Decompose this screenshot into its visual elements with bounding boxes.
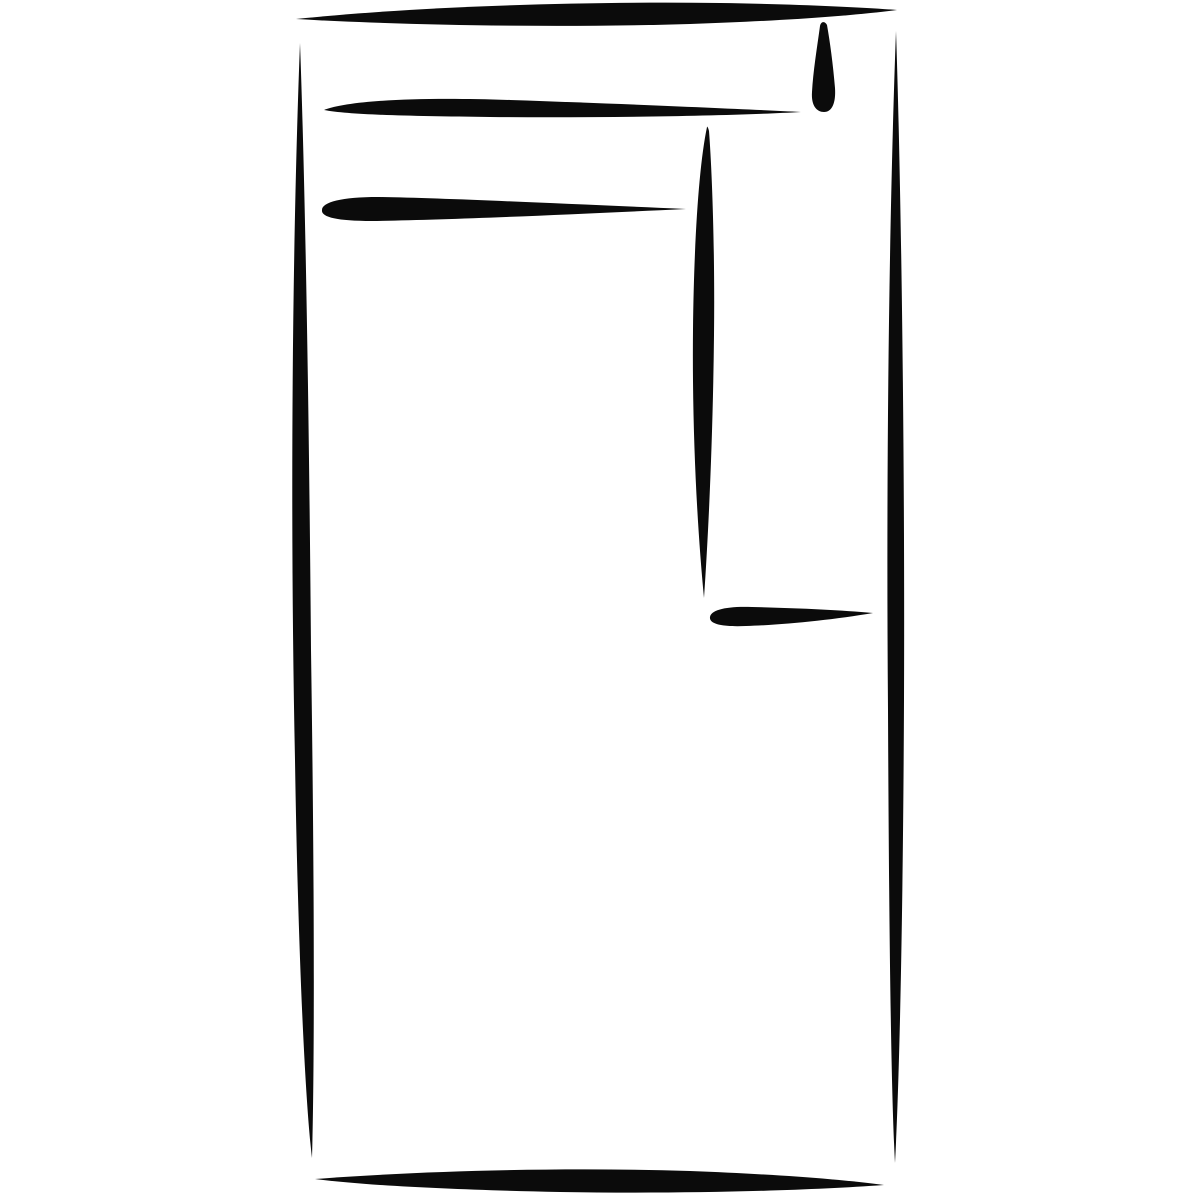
header-rule-stroke bbox=[324, 99, 801, 117]
top-edge-stroke bbox=[296, 3, 897, 26]
ink-drip-stroke bbox=[812, 22, 835, 112]
inner-underline-stroke bbox=[710, 607, 873, 626]
left-edge-stroke bbox=[292, 43, 314, 1158]
right-edge-stroke bbox=[887, 31, 904, 1163]
inner-vertical-divider-stroke bbox=[693, 127, 714, 598]
sketch-canvas bbox=[0, 0, 1200, 1200]
bottom-edge-stroke bbox=[315, 1169, 884, 1192]
ink-drawing bbox=[0, 0, 1200, 1200]
subheader-rule-stroke bbox=[322, 197, 686, 221]
